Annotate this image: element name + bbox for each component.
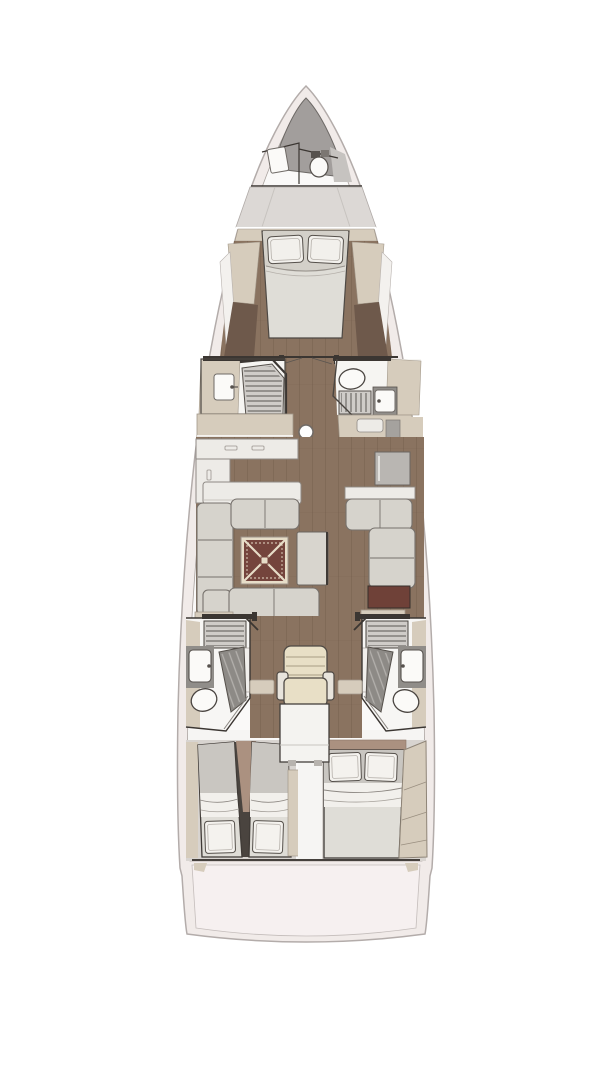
nav-seat-cushion: [368, 586, 410, 608]
headboard-band: [324, 740, 406, 750]
owner-bed-pillow-port: [267, 235, 303, 264]
helm-chair-seat: [284, 678, 327, 706]
double-bed-pillow: [329, 752, 362, 781]
twin-bed-sheet-band: [200, 793, 239, 817]
double-bed-pillow: [365, 752, 398, 781]
table-foot: [314, 760, 322, 766]
foredeck-locker: [236, 187, 376, 228]
yacht-floorplan-drawing: [0, 0, 608, 1080]
port-counter: [197, 414, 293, 437]
table-foot: [288, 760, 296, 766]
side-shelf-starboard: [338, 680, 362, 694]
twin-bed-sheet-band: [250, 793, 290, 817]
twin-bed-pillow: [204, 820, 235, 853]
counter-appliance: [386, 420, 400, 438]
chart-table: [280, 704, 329, 762]
nav-station: [277, 646, 334, 766]
twin-bed-pillow: [252, 820, 283, 853]
owner-cabin: [214, 229, 398, 357]
shower-grate-slats: [244, 366, 282, 415]
starboard-aft-cabin: [322, 740, 427, 861]
coffee-bench: [297, 532, 328, 585]
door-post: [252, 612, 257, 621]
faucet: [401, 664, 405, 668]
foredeck-band: [236, 187, 376, 227]
twin-bed-blanket-top: [198, 742, 237, 793]
side-shelf-port: [250, 680, 274, 694]
salon: [195, 437, 424, 629]
fridge-cabinet: [375, 452, 410, 485]
mast-post: [299, 425, 313, 439]
crew-toilet: [310, 157, 328, 177]
sideboard: [345, 487, 415, 499]
head-top-wall: [333, 356, 391, 361]
double-bed-sheet-band: [324, 783, 402, 807]
faucet: [207, 664, 211, 668]
crew-sink: [267, 147, 289, 174]
salon-table: [241, 537, 288, 584]
galley-top-counter: [196, 439, 298, 459]
starboard-counter-sink: [357, 419, 383, 432]
table-center-medallion: [261, 557, 268, 564]
door-post: [355, 612, 360, 621]
hull-locker: [186, 742, 198, 858]
faucet: [377, 399, 381, 403]
head-grate-slats: [206, 623, 244, 646]
starboard-head: [333, 356, 421, 415]
bench-top: [297, 532, 328, 585]
crew-toilet-lid: [321, 150, 329, 157]
floorplan-page: [0, 0, 608, 1080]
transom-panel: [192, 865, 420, 936]
owner-bed-pillow-starboard: [307, 235, 343, 264]
head-grate-slats: [368, 623, 406, 646]
sofa-seat-forward: [346, 499, 412, 530]
